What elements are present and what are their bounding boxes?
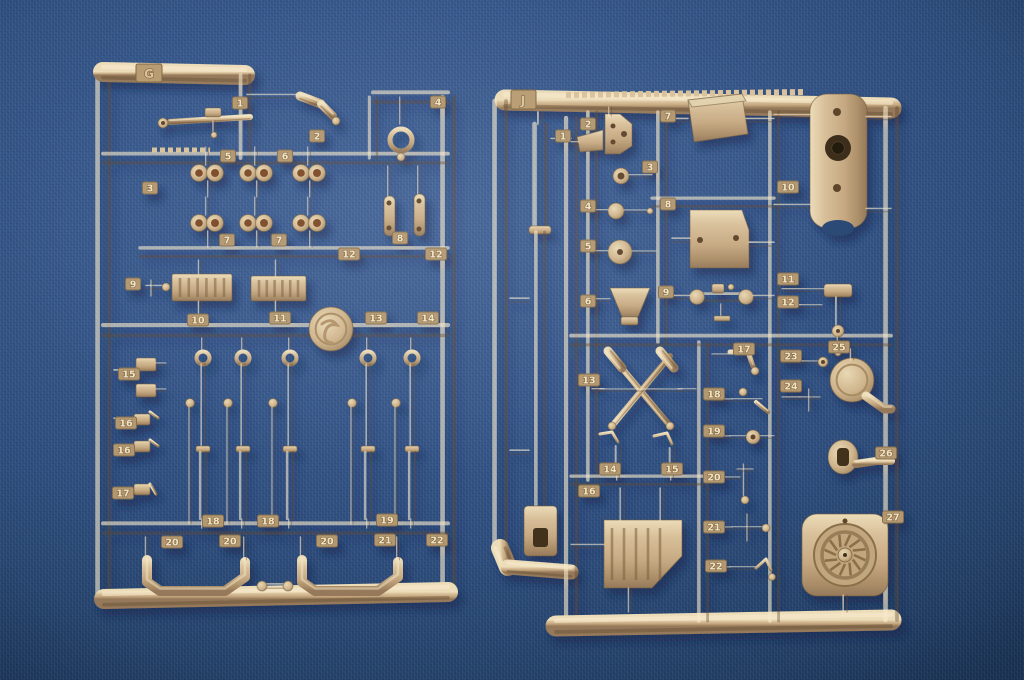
part-hole [313,169,321,177]
exhaust-pipe-part [147,560,245,591]
part-hole [211,219,219,227]
part-opening [533,528,548,547]
part-number: 21 [378,536,391,547]
part-number: 16 [582,487,596,498]
part-number-tag: 4 [581,200,596,213]
part-number: 26 [879,449,893,460]
part-number: 8 [397,234,404,245]
ring-part [390,129,412,151]
molded-part [283,581,293,591]
fan-blade [850,563,851,575]
part-number: 13 [582,376,595,387]
part-number-tag: 20 [317,535,338,548]
sprue-scene: G 12345677891011121213141516161718181920… [0,0,1024,680]
part-number: 6 [585,297,592,308]
part-number: 8 [665,200,672,211]
part-number-tag: 15 [119,368,140,381]
part-number: 20 [165,538,179,549]
part-number: 19 [707,427,720,438]
part-number-tag: 3 [143,182,158,195]
part-number: 20 [223,537,237,548]
part-number-tag: 20 [704,471,725,484]
part-number-tag: 4 [431,96,446,109]
sprue-letter-tab: G [136,64,162,82]
part-hole [833,184,841,192]
part-number-tag: 26 [876,447,897,460]
pipe-highlight [147,558,245,589]
part-number: 27 [886,513,899,524]
photo-stage: G 12345677891011121213141516161718181920… [0,0,1024,680]
part-number-tag: 14 [418,312,439,325]
part-number-tag: 19 [704,425,725,438]
sprue-rail [150,484,156,494]
part-number-tag: 7 [661,110,676,123]
part-number-tag: 12 [778,296,799,309]
molded-part [647,208,653,214]
part-number: 22 [430,536,443,547]
right-sprue: J 12345678910111213141516171819202122232… [495,90,904,632]
part-hole [611,124,616,129]
molded-part [751,367,759,375]
part-hole [260,219,268,227]
part-number: 21 [707,523,720,534]
part-number-tag: 2 [581,118,596,131]
molded-part [257,581,267,591]
part-hole [244,169,252,177]
part-number: 18 [206,517,220,528]
part-number: 2 [585,120,592,131]
molded-part [162,283,170,291]
sprue-letter: J [520,94,525,108]
part-number-tag: 7 [272,234,287,247]
part-number-tag: 20 [162,536,183,549]
slatted-box-part [604,520,682,588]
part-number: 15 [122,370,135,381]
molded-part [762,524,770,532]
part-number-tag: 16 [579,485,600,498]
fan-hub-hole [843,553,847,557]
part-number: 9 [663,288,670,299]
molded-part [136,384,156,397]
part-number-tag: 6 [278,150,293,163]
molded-part [712,284,724,293]
part-number-tag: 15 [662,463,683,476]
part-hole [836,329,840,333]
part-number: 25 [832,343,845,354]
part-number: 12 [342,250,355,261]
funnel-part [610,288,650,317]
part-number: 23 [784,352,797,363]
part-number-tag: 13 [366,312,387,325]
part-number: 2 [314,132,321,143]
part-number: 7 [276,236,283,247]
part-number: 7 [665,112,672,123]
part-hole [244,219,252,227]
molded-part [741,496,749,504]
part-number-tag: 14 [600,463,621,476]
part-number: 12 [429,250,442,261]
pipe-highlight [302,558,398,589]
part-hole [611,140,616,145]
part-number: 13 [369,314,382,325]
part-number: 6 [282,152,289,163]
molded-part [134,441,150,452]
part-number: 7 [224,236,231,247]
part-hole [617,249,623,255]
part-number-tag: 6 [581,295,596,308]
part-number-tag: 1 [556,130,571,143]
part-number-tag: 17 [113,487,134,500]
part-number-tag: 12 [426,248,447,261]
part-hole [387,201,392,206]
part-number-tag: 8 [661,198,676,211]
part-number-tag: 22 [427,534,448,547]
part-number: 3 [647,163,654,174]
part-number-tag: 9 [126,278,141,291]
part-number: 3 [147,184,154,195]
molded-part [728,284,734,290]
part-number: 12 [781,298,794,309]
sprue-rail [608,351,622,368]
part-number: 15 [665,465,678,476]
part-hole [417,227,422,232]
molded-part [621,317,638,325]
part-number-tag: 5 [221,150,236,163]
part-hole [751,435,756,440]
part-number: 16 [117,446,131,457]
mantlet-notch [822,220,854,236]
part-number-tag: 24 [781,380,802,393]
part-number: 4 [585,202,592,213]
part-number-tag: 17 [734,343,755,356]
part-number-tag: 18 [704,388,725,401]
part-number: 19 [380,516,393,527]
part-hole [621,131,627,137]
part-number-tag: 19 [377,514,398,527]
fan-blade [839,535,840,547]
molded-part [714,316,730,321]
part-number-tag: 11 [778,273,799,286]
part-number-tag: 3 [643,161,658,174]
part-number-tag: 12 [339,248,360,261]
rail-highlight [103,67,245,70]
part-number-tag: 18 [203,515,224,528]
part-number: 17 [116,489,129,500]
sprue-letter: G [144,67,154,81]
wedge-part [577,130,603,152]
part-hole [195,169,203,177]
part-hole [832,142,844,154]
part-number-tag: 5 [581,240,596,253]
part-number: 20 [707,473,721,484]
part-hole [260,169,268,177]
part-number-tag: 21 [375,534,396,547]
molded-part [769,574,776,581]
part-number: 11 [781,275,794,286]
part-hole [417,199,422,204]
molded-part [134,484,150,495]
part-number: 14 [603,465,617,476]
part-number: 14 [421,314,435,325]
part-hole [211,169,219,177]
part-hole [195,219,203,227]
part-hole [618,173,625,180]
part-hole [833,108,841,116]
part-number-tag: 21 [704,521,725,534]
sprue-rail [150,440,158,446]
part-hole [843,519,848,524]
part-number: 18 [261,517,275,528]
part-number-tag: 18 [258,515,279,528]
part-number-tag: 20 [220,535,241,548]
hatch-part [605,114,632,154]
part-number: 20 [320,537,334,548]
part-hole [161,121,165,125]
part-number: 9 [130,280,137,291]
part-number-tag: 10 [778,181,799,194]
left-sprue: G 12345677891011121213141516161718181920… [98,64,454,605]
part-number-tag: 16 [114,444,135,457]
part-hole [697,237,703,243]
molded-part [211,132,217,138]
fan-blade [853,549,865,550]
part-number-tag: 11 [270,312,291,325]
molded-part [332,117,340,125]
part-hole [387,226,392,231]
sprue-rail [150,412,158,418]
part-number: 10 [191,316,205,327]
part-number-tag: 16 [116,417,137,430]
part-hole [733,235,739,241]
part-opening [837,448,849,466]
molded-part [608,422,616,430]
part-hole [313,219,321,227]
part-number: 24 [784,382,798,393]
sprue-letter-tab: J [511,90,536,109]
part-number-tag: 10 [188,314,209,327]
part-number: 22 [709,562,722,573]
part-number-tag: 13 [579,374,600,387]
molded-part [666,422,674,430]
part-number-tag: 2 [310,130,325,143]
molded-part [397,153,405,161]
part-number-tag: 9 [659,286,674,299]
part-number: 16 [119,419,133,430]
part-number: 18 [707,390,721,401]
part-hole [821,360,825,364]
part-number: 4 [435,98,442,109]
part-number-tag: 7 [220,234,235,247]
part-number-tag: 25 [829,341,850,354]
part-number: 1 [560,132,567,143]
sprue-rail [103,72,245,75]
part-number-tag: 1 [233,97,248,110]
sprue-rail [321,104,333,116]
molded-part [739,388,747,396]
part-number-tag: 22 [706,560,727,573]
molded-part [205,108,221,117]
exhaust-pipe-part [302,560,398,591]
part-number: 5 [585,242,592,253]
part-number: 1 [237,99,244,110]
part-number: 17 [737,345,750,356]
part-number-tag: 8 [393,232,408,245]
part-number: 10 [781,183,795,194]
part-number-tag: 23 [781,350,802,363]
part-hole [297,169,305,177]
part-number: 11 [273,314,286,325]
fan-blade [825,560,837,561]
part-number: 5 [225,152,232,163]
part-hole [297,219,305,227]
part-number-tag: 27 [883,511,904,524]
